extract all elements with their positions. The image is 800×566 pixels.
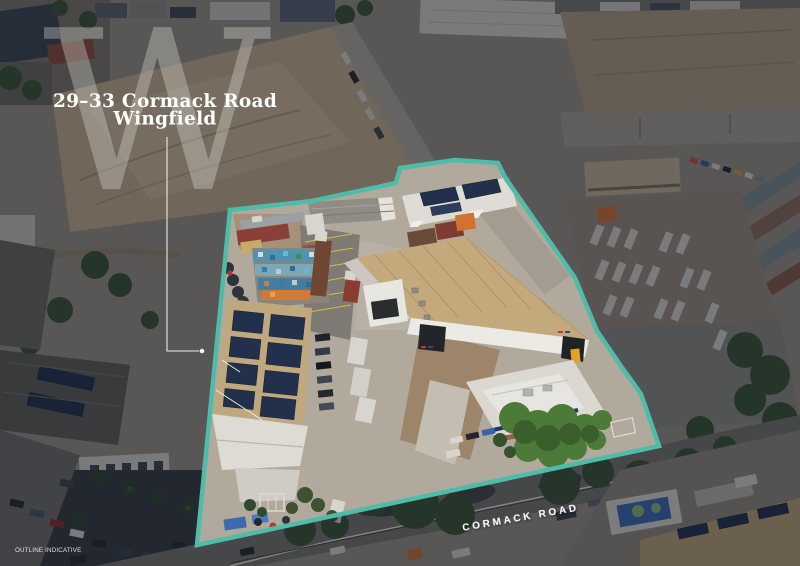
aerial-photo: W 29–33 Cormack Road Wingfield CORMACK R… bbox=[0, 0, 800, 566]
orange-container bbox=[455, 213, 476, 231]
solar-roof-building bbox=[213, 299, 312, 424]
aerial-property-marketing-image: W 29–33 Cormack Road Wingfield CORMACK R… bbox=[0, 0, 800, 566]
leader-dot bbox=[200, 349, 205, 354]
outline-indicative-note: OUTLINE INDICATIVE bbox=[15, 547, 81, 554]
property-suburb: Wingfield bbox=[112, 109, 216, 130]
